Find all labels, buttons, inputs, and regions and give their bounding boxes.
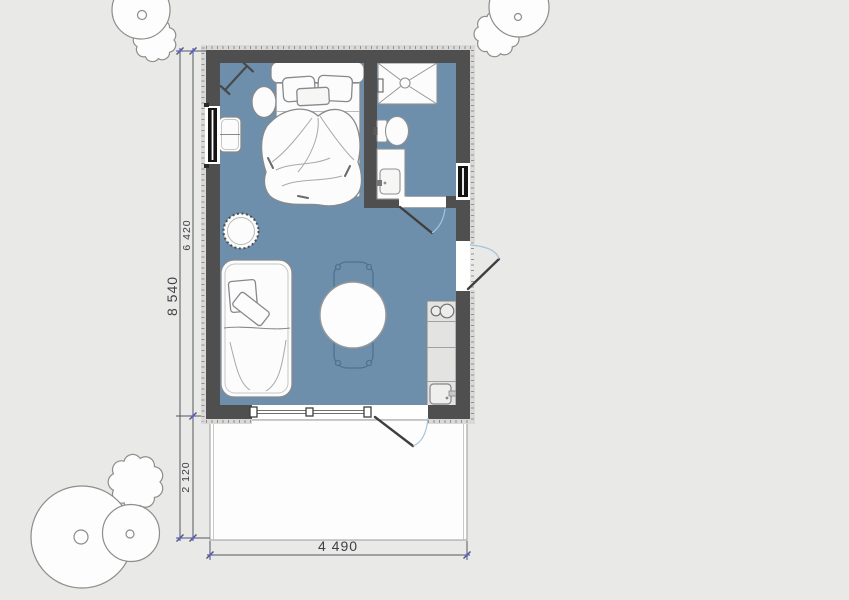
tree-group-bottom-left [31,454,163,588]
dim-label-terrace-depth: 2 120 [180,461,192,492]
bed [262,62,364,206]
floor-plan-drawing [0,0,849,600]
sofa [221,260,292,397]
wall-top [206,50,470,63]
bedside-cabinet [219,117,241,152]
hob-burners [431,304,454,318]
bed-duvet [262,109,362,206]
basin-faucet-icon [377,180,382,186]
terrace [210,420,467,540]
dim-label-interior-height: 6 420 [181,219,193,250]
side-stool [252,87,276,118]
tree-top-right [474,0,549,57]
dining-table [320,282,386,348]
flush-button [374,127,378,135]
dim-label-overall-width: 4 490 [318,538,358,554]
window-left [204,103,220,168]
shower-head-icon [378,79,383,92]
wall-right [456,50,470,419]
kitchen-counter [427,301,456,407]
floor-plan-canvas: 8 540 6 420 2 120 4 490 [0,0,849,600]
shower [378,63,437,104]
toilet [374,117,409,146]
entrance-door [456,241,499,291]
dim-label-overall-height: 8 540 [164,276,180,316]
window-right [456,163,470,200]
glazed-wall [250,405,373,419]
washbasin [377,149,405,199]
pouf [224,214,259,249]
tree-top-left [112,0,176,62]
